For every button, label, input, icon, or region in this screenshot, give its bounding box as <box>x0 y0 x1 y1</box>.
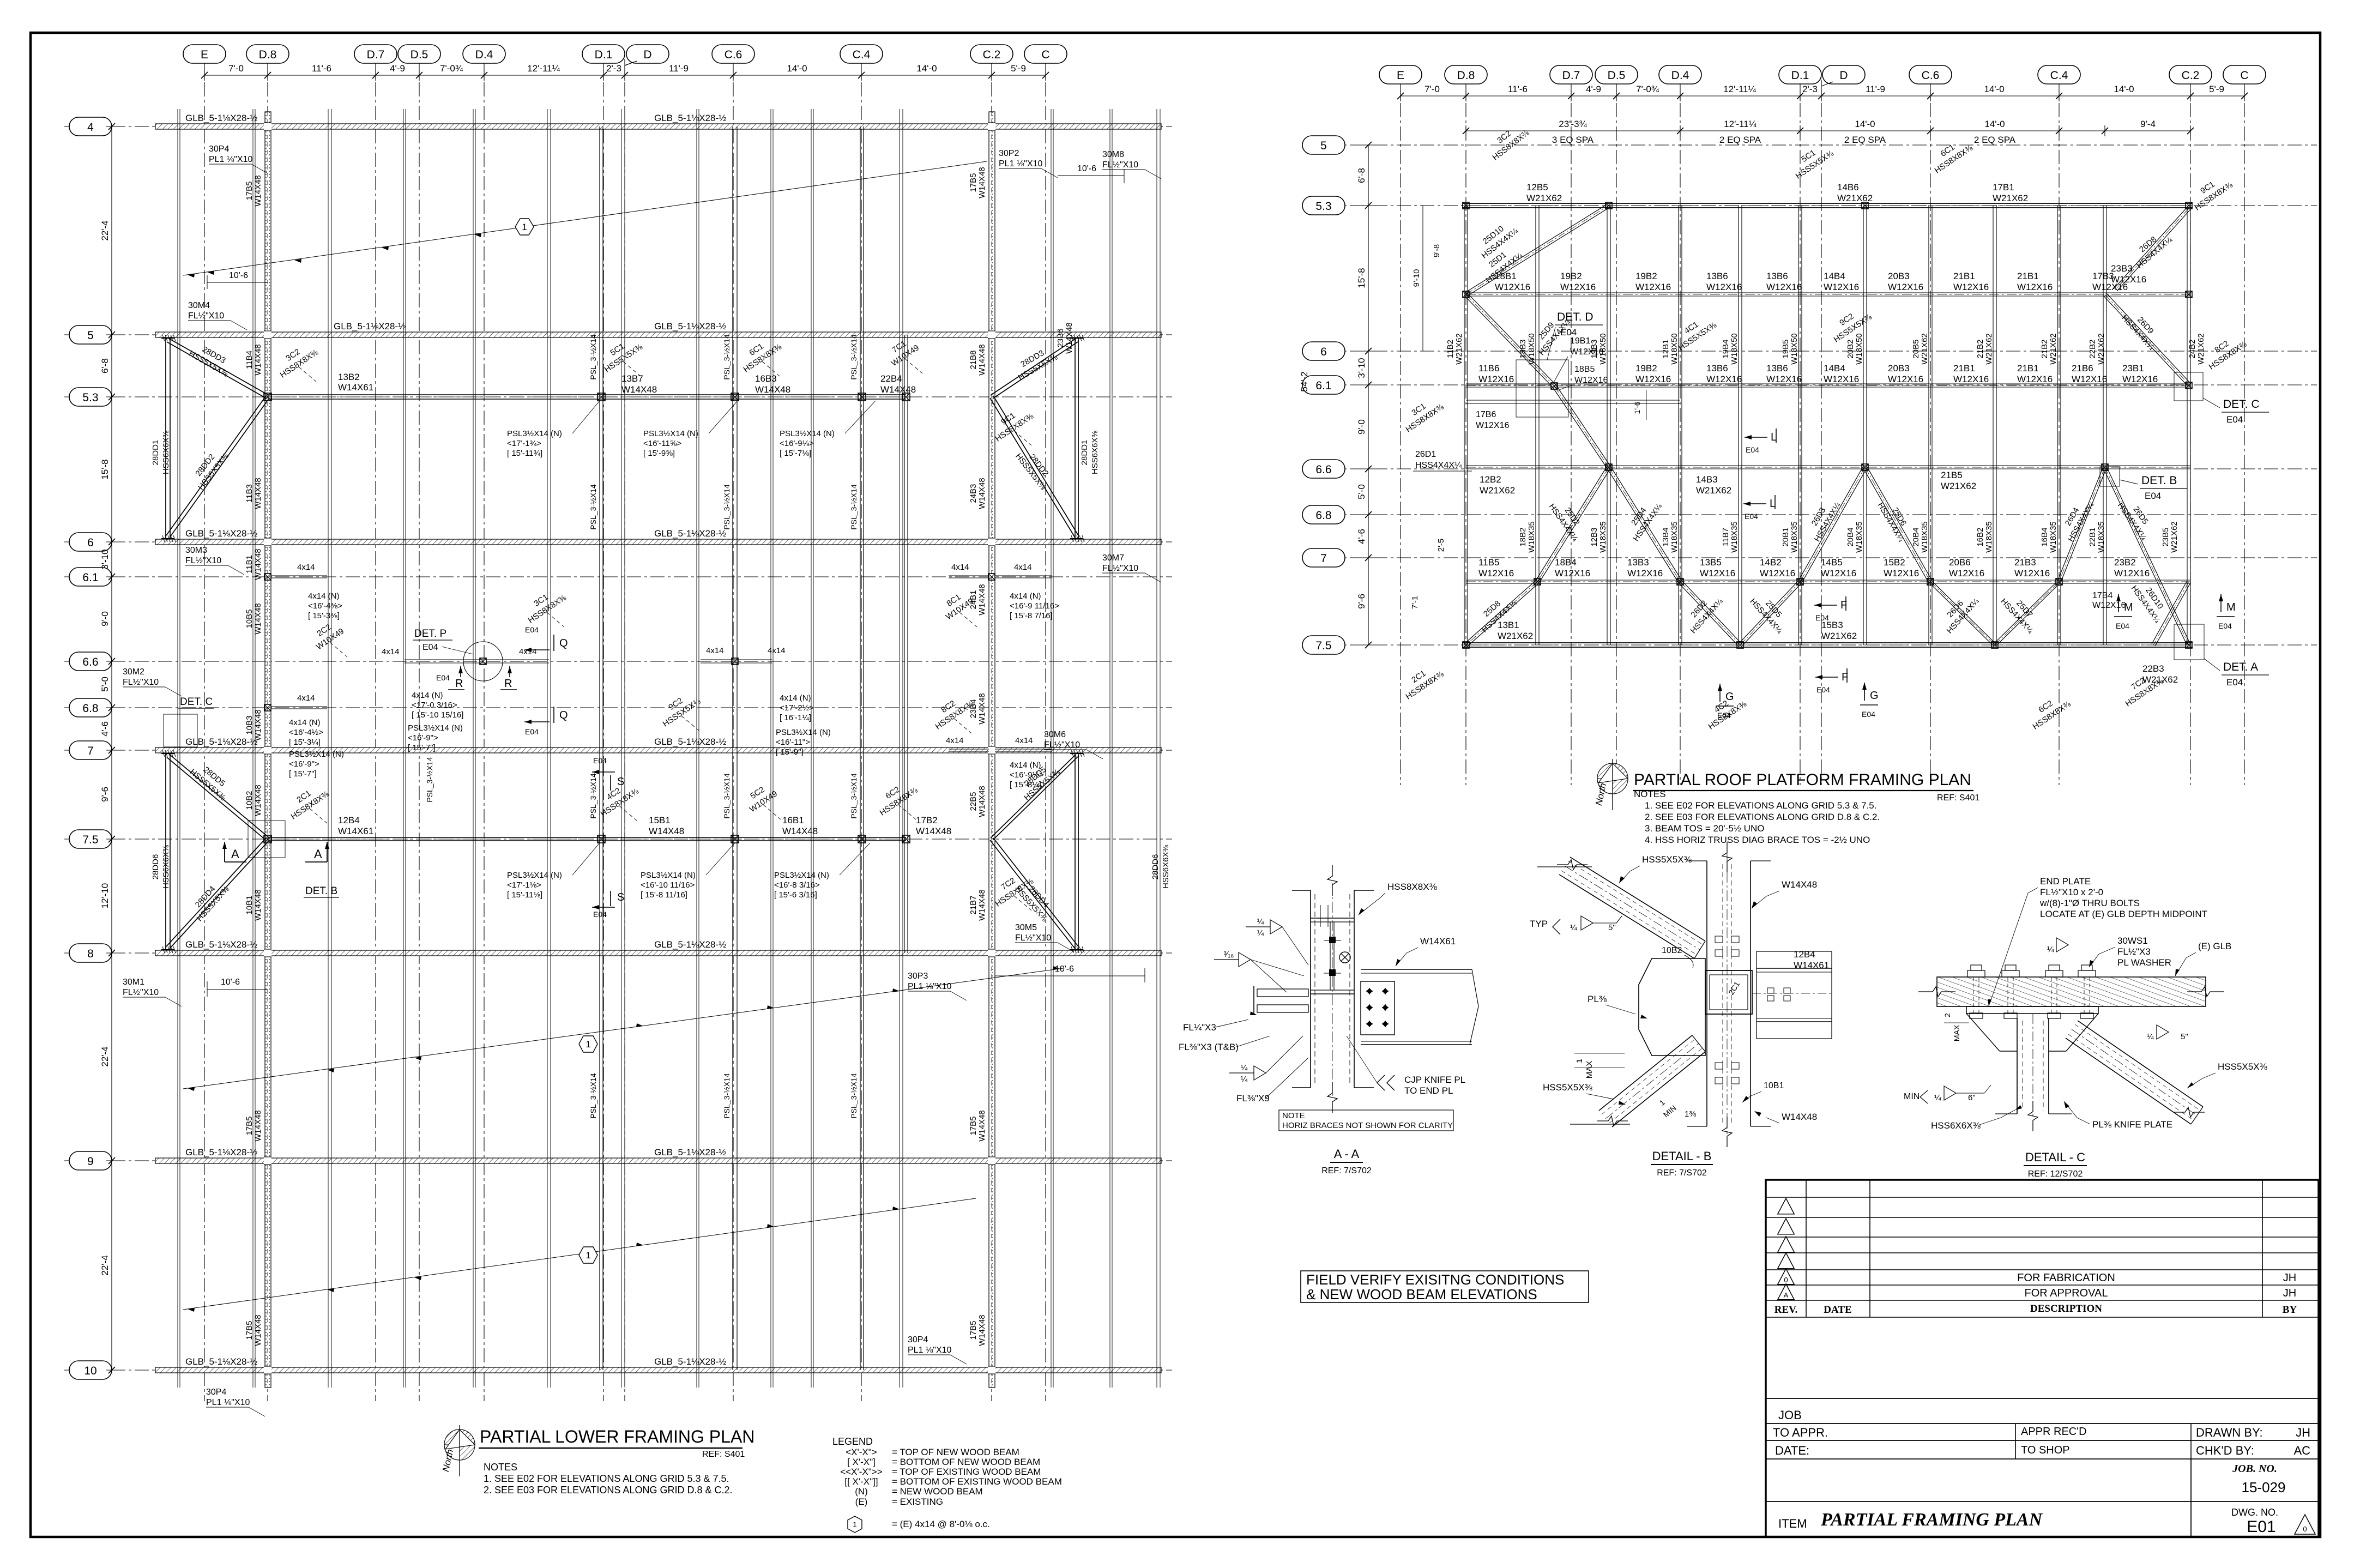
svg-text:E04: E04 <box>1816 685 1830 694</box>
svg-text:4'-6: 4'-6 <box>1356 529 1367 544</box>
svg-text:22B3: 22B3 <box>2142 664 2164 674</box>
svg-text:DET. C: DET. C <box>2223 398 2260 411</box>
svg-text:PL⅜ KNIFE PLATE: PL⅜ KNIFE PLATE <box>2092 1119 2172 1130</box>
svg-text:W12X16: W12X16 <box>1953 374 1989 384</box>
svg-text:11B3: 11B3 <box>245 484 254 503</box>
svg-text:<16'-10 11/16>: <16'-10 11/16> <box>641 881 695 890</box>
svg-text:W14X48: W14X48 <box>1065 322 1074 354</box>
svg-text:21B1: 21B1 <box>2017 271 2039 281</box>
svg-text:TO SHOP: TO SHOP <box>2021 1444 2070 1456</box>
svg-text:6.1: 6.1 <box>82 571 98 584</box>
svg-text:17B5: 17B5 <box>969 1116 978 1135</box>
svg-text:PSL_3-½X14: PSL_3-½X14 <box>722 1073 731 1118</box>
svg-text:CJP KNIFE PL: CJP KNIFE PL <box>1404 1075 1465 1085</box>
svg-text:24B3: 24B3 <box>969 484 978 503</box>
svg-text:G: G <box>1725 691 1734 703</box>
svg-text:20B2: 20B2 <box>1846 339 1855 358</box>
svg-text:W12X16: W12X16 <box>1884 568 1919 578</box>
svg-text:W12X16: W12X16 <box>1821 568 1856 578</box>
svg-text:W21X62: W21X62 <box>2049 333 2058 365</box>
svg-text:1: 1 <box>522 222 527 232</box>
svg-text:W14X48: W14X48 <box>649 826 684 836</box>
svg-text:2'-5: 2'-5 <box>1436 539 1446 552</box>
svg-text:<16'-9 11/16>: <16'-9 11/16> <box>1010 601 1059 611</box>
svg-text:14'-0: 14'-0 <box>1855 119 1875 129</box>
svg-text:22'-4: 22'-4 <box>100 220 110 240</box>
svg-text:12'-11¼: 12'-11¼ <box>1724 119 1757 129</box>
svg-text:20B3: 20B3 <box>1888 271 1910 281</box>
svg-text:MIN: MIN <box>1904 1092 1920 1101</box>
svg-text:23B1: 23B1 <box>2122 363 2144 373</box>
svg-text:PARTIAL ROOF PLATFORM FRAMING: PARTIAL ROOF PLATFORM FRAMING PLAN <box>1634 771 1971 789</box>
svg-text:3. BEAM TOS = 20'-5½ UNO: 3. BEAM TOS = 20'-5½ UNO <box>1645 823 1764 834</box>
svg-text:W14X48: W14X48 <box>253 344 263 376</box>
svg-text:W14X48: W14X48 <box>916 826 951 836</box>
svg-text:4x14 (N): 4x14 (N) <box>780 693 811 703</box>
svg-text:2. SEE E03 FOR ELEVATIONS ALO: 2. SEE E03 FOR ELEVATIONS ALONG GRID D.8… <box>1645 812 1880 822</box>
svg-text:11'-9: 11'-9 <box>1866 84 1885 94</box>
svg-text:W12X16: W12X16 <box>1555 568 1590 578</box>
svg-text:BY: BY <box>2283 1304 2297 1316</box>
svg-text:4x14: 4x14 <box>382 647 400 656</box>
svg-text:6'-8: 6'-8 <box>100 358 110 373</box>
svg-text:17B5: 17B5 <box>245 1116 254 1135</box>
svg-text:W21X62: W21X62 <box>1984 333 1994 365</box>
svg-text:HSS5X5X⅜: HSS5X5X⅜ <box>1543 1082 1593 1093</box>
svg-text:28DD1: 28DD1 <box>151 440 160 466</box>
svg-text:E04: E04 <box>1862 710 1875 719</box>
svg-text:17B5: 17B5 <box>245 1320 254 1340</box>
svg-text:GLB_5-1⅛X28-½: GLB_5-1⅛X28-½ <box>185 113 257 123</box>
svg-text:JH: JH <box>2296 1426 2310 1439</box>
svg-text:[ 15'-6 3/16]: [ 15'-6 3/16] <box>774 890 817 900</box>
svg-text:6.8: 6.8 <box>82 702 98 715</box>
svg-text:[ 15'-11⅛]: [ 15'-11⅛] <box>507 890 542 900</box>
svg-text:7.5: 7.5 <box>82 834 98 846</box>
svg-text:PSL_3-½X14: PSL_3-½X14 <box>722 484 731 529</box>
svg-text:4x14 (N): 4x14 (N) <box>289 718 321 727</box>
svg-text:17B5: 17B5 <box>969 173 978 192</box>
svg-text:<17'-0 3/16>: <17'-0 3/16> <box>412 701 457 710</box>
svg-text:W12X16: W12X16 <box>1766 282 1802 292</box>
svg-text:W14X48: W14X48 <box>977 786 987 817</box>
svg-text:GLB_5-1⅛X28-½: GLB_5-1⅛X28-½ <box>185 939 257 950</box>
svg-text:W14X48: W14X48 <box>253 478 263 509</box>
svg-text:30M7: 30M7 <box>1102 553 1124 563</box>
svg-text:HSS6X6X⅜: HSS6X6X⅜ <box>1931 1120 1981 1131</box>
svg-text:DET. D: DET. D <box>1557 311 1594 323</box>
svg-text:10B5: 10B5 <box>245 609 254 628</box>
svg-text:REF: 7/S702: REF: 7/S702 <box>1321 1166 1372 1175</box>
svg-text:30M4: 30M4 <box>188 301 210 310</box>
svg-text:[ 15'-9"]: [ 15'-9"] <box>776 747 804 757</box>
svg-text:11B6: 11B6 <box>1478 363 1499 373</box>
svg-text:HSS5X5X⅜: HSS5X5X⅜ <box>1642 854 1692 865</box>
svg-text:PL1 ⅛"X10: PL1 ⅛"X10 <box>908 982 952 991</box>
svg-text:16B1: 16B1 <box>782 815 804 825</box>
svg-text:4x14: 4x14 <box>297 563 315 572</box>
svg-text:W12X16: W12X16 <box>1824 374 1859 384</box>
svg-text:<16'-9⅛>: <16'-9⅛> <box>780 439 814 448</box>
svg-text:W21X62: W21X62 <box>1837 193 1873 203</box>
svg-text:W21X62: W21X62 <box>2097 333 2106 365</box>
svg-text:2 EQ SPA: 2 EQ SPA <box>1844 135 1886 145</box>
svg-text:PSL_3-½X14: PSL_3-½X14 <box>589 773 597 818</box>
svg-text:24B2: 24B2 <box>2188 339 2197 358</box>
svg-text:4x14: 4x14 <box>1015 736 1033 745</box>
svg-text:30P4: 30P4 <box>206 1388 226 1397</box>
svg-text:D.7: D.7 <box>367 49 385 61</box>
svg-text:PSL3½X14 (N): PSL3½X14 (N) <box>641 871 696 880</box>
svg-text:Q: Q <box>559 637 568 649</box>
svg-text:¼: ¼ <box>2147 1032 2154 1041</box>
svg-text:12'-11¼: 12'-11¼ <box>527 63 560 74</box>
svg-text:W12X16: W12X16 <box>1949 568 1984 578</box>
svg-text:R: R <box>504 678 512 690</box>
svg-text:17B5: 17B5 <box>245 181 254 200</box>
svg-text:5: 5 <box>1320 140 1327 152</box>
svg-text:14B4: 14B4 <box>1824 363 1845 373</box>
svg-text:5.3: 5.3 <box>1315 200 1331 213</box>
svg-text:11'-9: 11'-9 <box>669 63 689 74</box>
svg-text:TYP: TYP <box>1530 919 1548 929</box>
svg-text:3'-10: 3'-10 <box>100 549 110 569</box>
svg-text:4: 4 <box>87 121 94 134</box>
svg-text:4x14: 4x14 <box>519 647 537 656</box>
svg-text:13B7: 13B7 <box>621 373 643 384</box>
svg-text:<<X'-X">>: <<X'-X">> <box>840 1467 882 1477</box>
svg-text:¼: ¼ <box>1241 1075 1248 1084</box>
svg-text:[ X'-X"]: [ X'-X"] <box>847 1457 876 1467</box>
svg-text:C.4: C.4 <box>853 49 871 61</box>
svg-text:23B4: 23B4 <box>969 699 978 718</box>
svg-text:JOB. NO.: JOB. NO. <box>2232 1463 2277 1475</box>
svg-text:14'-0: 14'-0 <box>1984 119 2005 129</box>
svg-text:4x14: 4x14 <box>297 693 315 703</box>
svg-text:(E): (E) <box>855 1497 868 1507</box>
svg-text:E04: E04 <box>1717 711 1731 720</box>
svg-text:18B3: 18B3 <box>1518 339 1528 358</box>
svg-text:W21X62: W21X62 <box>1526 193 1562 203</box>
svg-text:0: 0 <box>2303 1525 2307 1533</box>
svg-text:PSL3½X14 (N): PSL3½X14 (N) <box>289 750 344 759</box>
svg-text:1: 1 <box>586 1250 590 1261</box>
svg-text:21B1: 21B1 <box>1953 271 1975 281</box>
svg-text:W18X35: W18X35 <box>1527 521 1536 553</box>
svg-text:17B6: 17B6 <box>1476 410 1496 419</box>
svg-text:W18X35: W18X35 <box>1598 521 1608 553</box>
svg-text:W21X62: W21X62 <box>1480 485 1515 496</box>
svg-text:GLB_5-1⅛X28-½: GLB_5-1⅛X28-½ <box>654 1356 726 1367</box>
svg-text:PSL_3-½X14: PSL_3-½X14 <box>722 334 731 379</box>
svg-text:13B6: 13B6 <box>1706 363 1728 373</box>
svg-text:W14X48: W14X48 <box>755 384 790 395</box>
svg-text:30M2: 30M2 <box>123 667 144 677</box>
svg-text:6.6: 6.6 <box>82 656 98 668</box>
svg-text:10: 10 <box>84 1365 96 1377</box>
svg-text:(E) GLB: (E) GLB <box>2198 941 2231 951</box>
svg-text:8: 8 <box>87 948 94 960</box>
svg-text:W12X16: W12X16 <box>1700 568 1735 578</box>
svg-text:7.5: 7.5 <box>1315 640 1331 652</box>
svg-text:4'-9: 4'-9 <box>1586 84 1601 94</box>
svg-text:FL½"X3: FL½"X3 <box>2117 946 2151 957</box>
svg-text:W12X16: W12X16 <box>2014 568 2050 578</box>
svg-text:FL½"X10: FL½"X10 <box>1102 160 1138 170</box>
svg-text:<X'-X">: <X'-X"> <box>846 1447 877 1457</box>
svg-text:PL1 ⅛"X10: PL1 ⅛"X10 <box>209 155 253 164</box>
svg-text:54'-2: 54'-2 <box>1299 371 1309 391</box>
svg-text:5'-0: 5'-0 <box>1356 484 1367 499</box>
svg-text:W12X16: W12X16 <box>2111 274 2146 285</box>
svg-text:W21X62: W21X62 <box>1454 333 1464 365</box>
svg-text:[ 16'-1¼]: [ 16'-1¼] <box>780 713 811 722</box>
svg-text:9'-10: 9'-10 <box>1412 269 1421 287</box>
svg-text:4x14: 4x14 <box>1014 563 1032 572</box>
svg-text:E: E <box>201 49 208 61</box>
svg-text:E04: E04 <box>2226 677 2243 687</box>
svg-text:W18X35: W18X35 <box>1670 521 1679 553</box>
svg-text:¼: ¼ <box>1257 928 1264 938</box>
svg-text:<16'-9">: <16'-9"> <box>289 759 319 769</box>
svg-text:W14X48: W14X48 <box>253 889 263 921</box>
svg-text:E04: E04 <box>436 673 450 682</box>
svg-text:W14X48: W14X48 <box>782 826 818 836</box>
svg-text:PL WASHER: PL WASHER <box>2117 957 2171 968</box>
svg-text:E04: E04 <box>1745 512 1758 521</box>
svg-text:23B2: 23B2 <box>2114 557 2136 568</box>
svg-text:= TOP OF EXISTING WOOD BEAM: = TOP OF EXISTING WOOD BEAM <box>892 1467 1041 1477</box>
svg-text:DATE:: DATE: <box>1775 1444 1809 1457</box>
svg-text:11'-6: 11'-6 <box>1508 84 1528 94</box>
svg-text:PSL_3-½X14: PSL_3-½X14 <box>849 484 858 529</box>
svg-text:4x14 (N): 4x14 (N) <box>1010 761 1041 770</box>
svg-text:PSL_3-½X14: PSL_3-½X14 <box>589 334 597 379</box>
svg-text:W12X16: W12X16 <box>1478 374 1514 384</box>
svg-text:13B6: 13B6 <box>1766 363 1788 373</box>
svg-text:= EXISTING: = EXISTING <box>892 1497 943 1507</box>
svg-text:24B1: 24B1 <box>969 590 978 609</box>
svg-text:MAX: MAX <box>1585 1061 1594 1079</box>
svg-text:D: D <box>643 49 651 61</box>
svg-text:W14X48: W14X48 <box>880 384 916 395</box>
svg-text:¼: ¼ <box>1257 917 1264 926</box>
svg-text:30P3: 30P3 <box>908 972 928 981</box>
svg-text:13B6: 13B6 <box>1766 271 1788 281</box>
svg-text:W18X50: W18X50 <box>1855 333 1864 365</box>
svg-text:DESCRIPTION: DESCRIPTION <box>2030 1303 2102 1314</box>
svg-text:W12X16: W12X16 <box>1635 374 1671 384</box>
svg-text:7'-0¾: 7'-0¾ <box>440 63 463 74</box>
svg-text:D: D <box>1839 69 1848 82</box>
svg-text:GLB_5-1⅛X28-½: GLB_5-1⅛X28-½ <box>185 528 257 539</box>
svg-text:REV.: REV. <box>1774 1304 1797 1316</box>
svg-text:16B3: 16B3 <box>755 373 777 384</box>
svg-text:10'-6: 10'-6 <box>229 271 248 280</box>
svg-text:NOTE: NOTE <box>1282 1111 1305 1120</box>
svg-text:PL1 ⅛"X10: PL1 ⅛"X10 <box>908 1346 952 1355</box>
svg-text:30WS1: 30WS1 <box>2117 936 2148 946</box>
svg-text:7'-0: 7'-0 <box>1425 84 1440 94</box>
svg-text:C.6: C.6 <box>1922 69 1940 82</box>
svg-text:HSS6X6X⅜: HSS6X6X⅜ <box>1090 430 1100 474</box>
svg-text:9: 9 <box>87 1155 94 1168</box>
svg-text:13B2: 13B2 <box>338 372 360 382</box>
svg-text:18B2: 18B2 <box>1518 527 1528 546</box>
svg-text:D.4: D.4 <box>475 49 493 61</box>
svg-text:LOCATE AT (E) GLB DEPTH MIDPOI: LOCATE AT (E) GLB DEPTH MIDPOINT <box>2040 909 2207 919</box>
svg-text:FL½"X10: FL½"X10 <box>123 988 159 997</box>
svg-text:20B4: 20B4 <box>1911 527 1921 546</box>
svg-text:W14X48: W14X48 <box>1782 879 1817 890</box>
svg-text:PL⅜: PL⅜ <box>1588 994 1607 1004</box>
svg-text:<16'-9½>: <16'-9½> <box>1010 770 1044 780</box>
svg-text:PSL_3-½X14: PSL_3-½X14 <box>589 1073 597 1118</box>
svg-text:[ 15'-7"]: [ 15'-7"] <box>289 769 317 779</box>
svg-text:FL¼"X3: FL¼"X3 <box>1183 1022 1216 1033</box>
svg-text:1: 1 <box>586 1039 590 1050</box>
svg-text:30P4: 30P4 <box>209 144 229 154</box>
svg-text:<16'-8 3/16>: <16'-8 3/16> <box>774 881 820 890</box>
svg-text:PSL3½X14 (N): PSL3½X14 (N) <box>507 429 562 438</box>
svg-text:¼: ¼ <box>1570 923 1577 932</box>
svg-text:23'-3¾: 23'-3¾ <box>1559 119 1587 129</box>
svg-text:19B4: 19B4 <box>1721 339 1730 358</box>
svg-text:W12X16: W12X16 <box>2017 282 2053 292</box>
svg-text:CHK'D BY:: CHK'D BY: <box>2196 1444 2254 1457</box>
svg-text:2'-3: 2'-3 <box>1802 84 1818 94</box>
svg-text:D.1: D.1 <box>595 49 613 61</box>
svg-text:PARTIAL FRAMING PLAN: PARTIAL FRAMING PLAN <box>1820 1510 2043 1530</box>
svg-text:DETAIL - B: DETAIL - B <box>1652 1149 1712 1163</box>
svg-text:GLB_5-1⅛X28-½: GLB_5-1⅛X28-½ <box>185 1147 257 1157</box>
svg-text:11B7: 11B7 <box>1721 528 1730 546</box>
svg-text:E04: E04 <box>422 643 438 652</box>
svg-text:W12X16: W12X16 <box>1560 282 1596 292</box>
svg-text:G: G <box>1870 690 1879 702</box>
svg-text:4'-6: 4'-6 <box>100 721 110 737</box>
svg-text:4. HSS HORIZ TRUSS DIAG BRACE: 4. HSS HORIZ TRUSS DIAG BRACE TOS = -2½ … <box>1645 835 1870 845</box>
svg-text:E04: E04 <box>1815 613 1829 622</box>
svg-text:FOR APPROVAL: FOR APPROVAL <box>2024 1287 2108 1299</box>
svg-text:W14X61: W14X61 <box>338 382 373 393</box>
svg-text:(N): (N) <box>855 1486 868 1497</box>
svg-text:C: C <box>1041 49 1049 61</box>
svg-text:10'-6: 10'-6 <box>221 978 240 987</box>
svg-text:21B2: 21B2 <box>2040 339 2049 358</box>
svg-text:W12X16: W12X16 <box>2114 568 2150 578</box>
svg-text:4'-9: 4'-9 <box>390 63 405 74</box>
svg-text:1'-6: 1'-6 <box>1633 401 1641 414</box>
svg-text:NOTES: NOTES <box>1634 789 1666 799</box>
svg-text:4x14: 4x14 <box>951 563 969 572</box>
svg-text:¼: ¼ <box>2047 945 2054 954</box>
svg-text:30M3: 30M3 <box>185 546 207 555</box>
svg-text:30P4: 30P4 <box>908 1335 928 1344</box>
svg-text:W21X62: W21X62 <box>2170 521 2179 553</box>
svg-text:17B2: 17B2 <box>916 815 938 825</box>
svg-text:10'-6: 10'-6 <box>1077 164 1096 173</box>
svg-text:PSL_3-½X14: PSL_3-½X14 <box>849 773 858 818</box>
svg-text:15-029: 15-029 <box>2242 1479 2286 1495</box>
svg-text:C.6: C.6 <box>725 49 743 61</box>
svg-text:W14X48: W14X48 <box>977 1314 987 1346</box>
svg-text:30M8: 30M8 <box>1102 150 1124 159</box>
svg-text:PL1 ⅛"X10: PL1 ⅛"X10 <box>999 159 1043 168</box>
svg-text:JOB: JOB <box>1778 1408 1802 1422</box>
svg-text:DET. B: DET. B <box>2141 474 2177 487</box>
svg-text:REF: 7/S702: REF: 7/S702 <box>1657 1168 1707 1178</box>
svg-text:W14X48: W14X48 <box>253 1314 263 1346</box>
svg-text:6.8: 6.8 <box>1315 509 1331 522</box>
svg-text:17B1: 17B1 <box>1993 182 2014 192</box>
svg-text:3'-10: 3'-10 <box>1356 358 1367 378</box>
svg-text:9'-0: 9'-0 <box>100 611 110 626</box>
svg-text:16B2: 16B2 <box>1976 527 1985 546</box>
svg-text:W14X48: W14X48 <box>253 603 263 635</box>
svg-text:w/(8)-1"Ø THRU BOLTS: w/(8)-1"Ø THRU BOLTS <box>2039 898 2140 908</box>
svg-text:15'-8: 15'-8 <box>100 459 110 479</box>
svg-text:DET. B: DET. B <box>305 885 337 897</box>
svg-text:= (E) 4x14 @ 8'-0⅛ o.c.: = (E) 4x14 @ 8'-0⅛ o.c. <box>892 1519 990 1529</box>
svg-text:FIELD VERIFY EXISITNG CONDITIO: FIELD VERIFY EXISITNG CONDITIONS <box>1306 1271 1564 1288</box>
svg-text:REF: S401: REF: S401 <box>702 1450 745 1459</box>
svg-text:21B6: 21B6 <box>2072 363 2093 373</box>
svg-text:22'-4: 22'-4 <box>100 1046 110 1066</box>
svg-text:2'-3: 2'-3 <box>606 63 621 74</box>
svg-text:[ 15'-11¾]: [ 15'-11¾] <box>507 449 542 458</box>
svg-text:7'-0: 7'-0 <box>228 63 244 74</box>
svg-text:6'-8: 6'-8 <box>1356 168 1367 183</box>
svg-text:18B5: 18B5 <box>1574 365 1595 374</box>
svg-text:³⁄₁₆: ³⁄₁₆ <box>1224 950 1234 959</box>
svg-text:W12X16: W12X16 <box>2122 374 2158 384</box>
svg-text:12B2: 12B2 <box>1480 474 1501 485</box>
svg-text:HSS6X6X⅜: HSS6X6X⅜ <box>161 845 171 889</box>
svg-text:E: E <box>1397 69 1404 82</box>
svg-text:PSL3½X14 (N): PSL3½X14 (N) <box>408 723 463 733</box>
svg-text:21B1: 21B1 <box>1953 363 1975 373</box>
svg-text:= BOTTOM OF EXISTING WOOD BEAM: = BOTTOM OF EXISTING WOOD BEAM <box>892 1476 1062 1487</box>
svg-text:W14X48: W14X48 <box>253 709 263 741</box>
svg-text:REF: S401: REF: S401 <box>1937 793 1979 803</box>
svg-text:HSS4X4X¼: HSS4X4X¼ <box>1415 461 1462 470</box>
svg-text:HSS6X6X⅜: HSS6X6X⅜ <box>161 430 171 474</box>
svg-text:A: A <box>231 847 239 861</box>
svg-text:14'-0: 14'-0 <box>787 63 807 74</box>
svg-text:11B2: 11B2 <box>1446 340 1455 358</box>
svg-text:W12X16: W12X16 <box>2072 374 2107 384</box>
svg-text:W21X62: W21X62 <box>2196 333 2206 365</box>
svg-text:GLB_5-1⅛X28-½: GLB_5-1⅛X28-½ <box>654 113 726 123</box>
svg-text:END PLATE: END PLATE <box>2040 876 2091 886</box>
svg-text:GLB_5-1⅛X28-½: GLB_5-1⅛X28-½ <box>185 1356 257 1367</box>
svg-text:7: 7 <box>87 745 94 757</box>
svg-text:W18X50: W18X50 <box>1730 333 1739 365</box>
svg-text:[ 15'-9⅝]: [ 15'-9⅝] <box>643 449 675 458</box>
svg-text:[ 15'-7⅛]: [ 15'-7⅛] <box>780 449 811 458</box>
svg-text:14'-0: 14'-0 <box>1984 84 2004 94</box>
svg-text:13B1: 13B1 <box>1498 620 1519 630</box>
svg-text:W12X16: W12X16 <box>1574 376 1608 385</box>
svg-text:E04: E04 <box>2226 414 2243 425</box>
svg-text:DET. A: DET. A <box>2223 661 2258 673</box>
svg-text:11'-6: 11'-6 <box>312 63 331 74</box>
svg-text:ITEM: ITEM <box>1778 1517 1807 1530</box>
svg-text:PSL_3-½X14: PSL_3-½X14 <box>722 773 731 818</box>
svg-text:¼: ¼ <box>1934 1093 1941 1102</box>
svg-text:30M5: 30M5 <box>1015 923 1037 932</box>
